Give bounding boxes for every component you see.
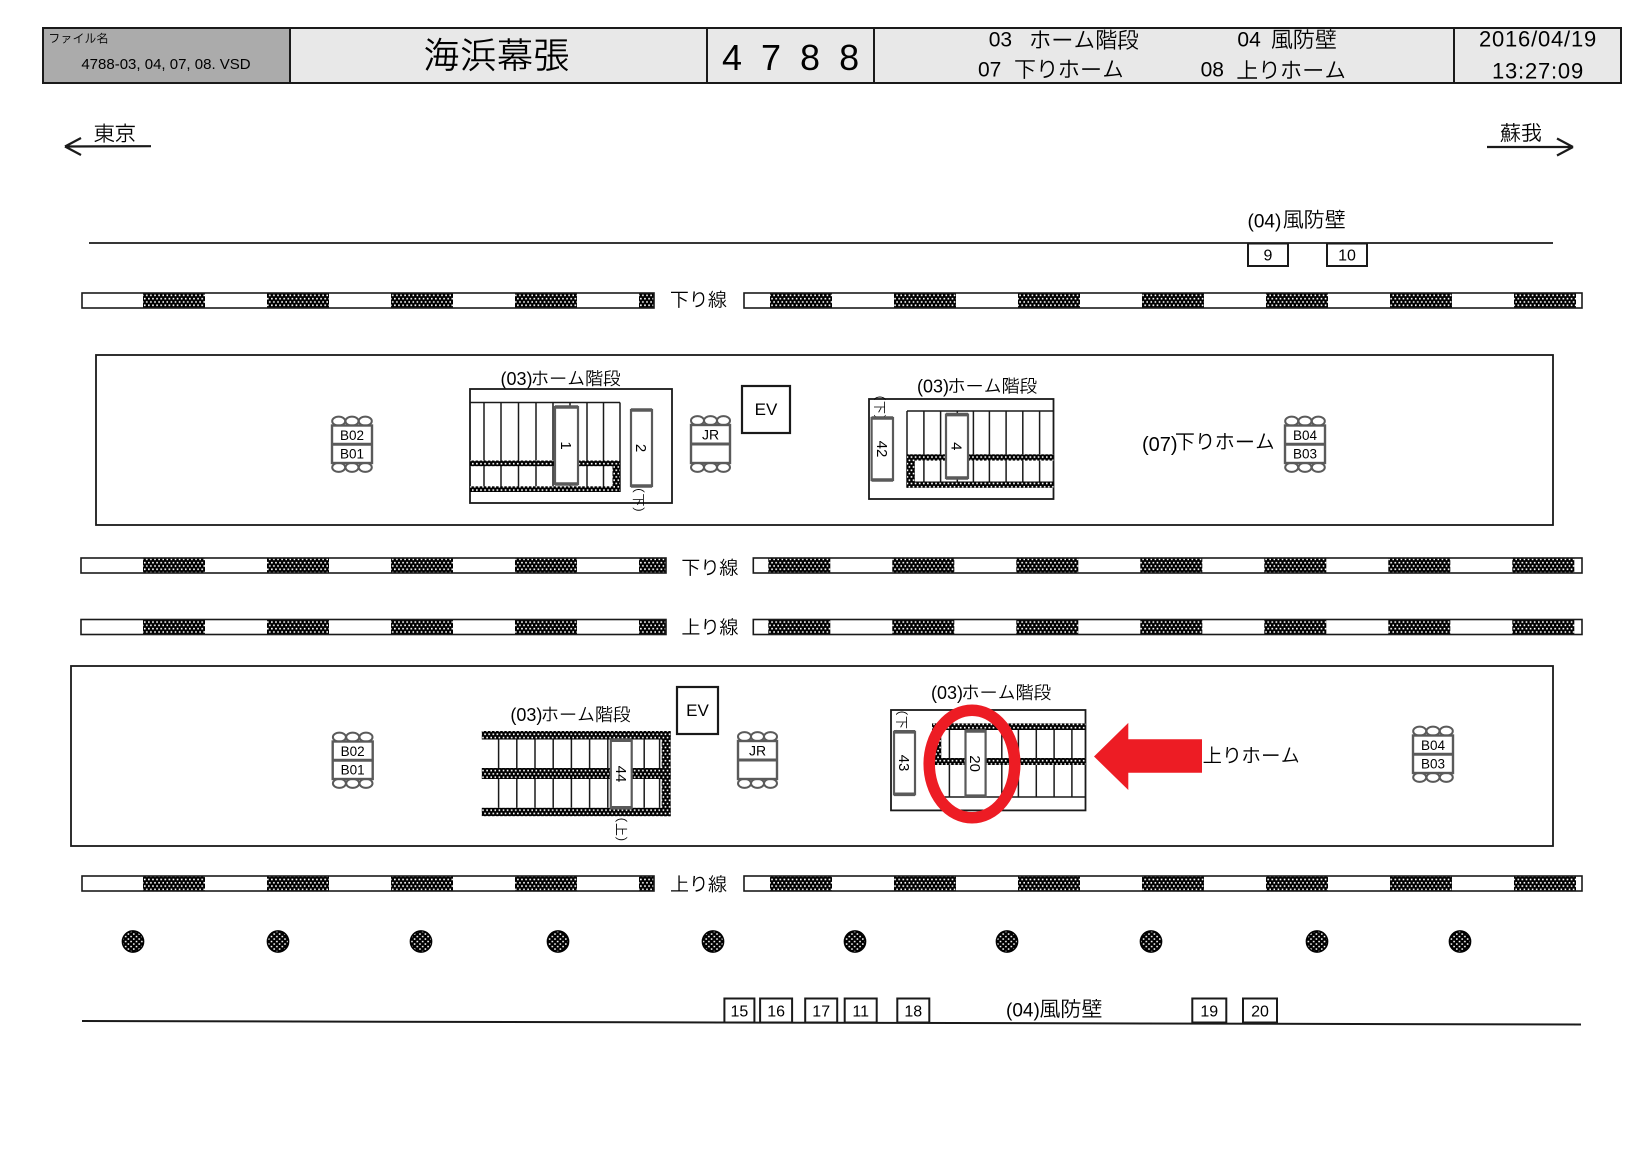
svg-text:42: 42	[873, 441, 890, 458]
svg-text:B04: B04	[1421, 738, 1446, 753]
svg-text:44: 44	[612, 766, 629, 783]
svg-text:(07): (07)	[1142, 434, 1178, 456]
svg-text:B01: B01	[341, 763, 365, 778]
svg-text:19: 19	[1200, 1004, 1218, 1021]
svg-text:EV: EV	[686, 701, 709, 720]
svg-text:(03): (03)	[931, 683, 963, 703]
svg-text:07: 07	[978, 58, 1001, 81]
svg-text:B02: B02	[340, 428, 364, 443]
svg-text:20: 20	[966, 755, 983, 772]
svg-text:17: 17	[812, 1004, 830, 1021]
svg-text:13:27:09: 13:27:09	[1492, 59, 1584, 84]
svg-text:(03): (03)	[510, 705, 542, 725]
svg-text:9: 9	[1264, 248, 1273, 265]
svg-text:4: 4	[948, 442, 965, 450]
svg-text:20: 20	[1251, 1004, 1269, 1021]
svg-text:04: 04	[1237, 28, 1261, 51]
svg-text:1: 1	[557, 441, 574, 449]
svg-text:B02: B02	[341, 744, 365, 759]
svg-text:JR: JR	[749, 743, 766, 759]
svg-text:18: 18	[904, 1004, 922, 1021]
svg-text:B03: B03	[1293, 447, 1317, 462]
svg-text:11: 11	[852, 1004, 869, 1021]
svg-text:B01: B01	[340, 447, 364, 462]
svg-text:08: 08	[1201, 58, 1224, 81]
svg-text:16: 16	[767, 1004, 785, 1021]
svg-text:B04: B04	[1293, 428, 1318, 443]
svg-text:(03): (03)	[917, 377, 949, 397]
svg-text:4788-03, 04, 07, 08. VSD: 4788-03, 04, 07, 08. VSD	[81, 56, 250, 73]
svg-text:43: 43	[895, 755, 912, 772]
svg-text:4788: 4788	[722, 37, 878, 78]
svg-text:(03): (03)	[501, 369, 533, 389]
svg-text:15: 15	[731, 1004, 749, 1021]
svg-text:(04): (04)	[1248, 212, 1282, 233]
svg-text:B03: B03	[1421, 757, 1445, 772]
svg-text:2: 2	[632, 444, 649, 452]
svg-text:03: 03	[989, 28, 1012, 51]
svg-text:EV: EV	[755, 400, 778, 419]
svg-text:(04): (04)	[1006, 1001, 1040, 1022]
svg-text:10: 10	[1338, 248, 1356, 265]
svg-text:2016/04/19: 2016/04/19	[1479, 27, 1597, 52]
svg-text:JR: JR	[702, 427, 719, 443]
